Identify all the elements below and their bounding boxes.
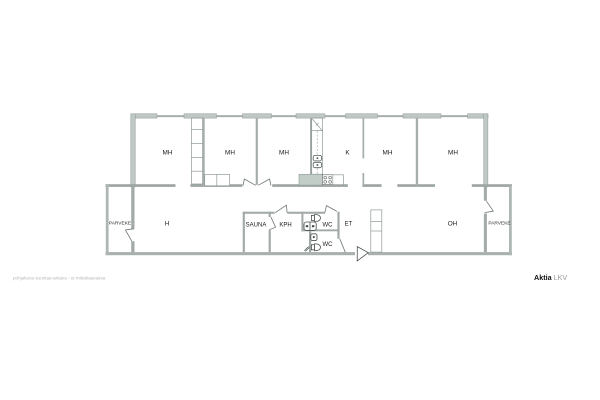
svg-text:PARVEKE: PARVEKE: [109, 220, 131, 226]
svg-text:OH: OH: [448, 221, 458, 228]
svg-text:KPH: KPH: [279, 223, 291, 229]
svg-text:K: K: [345, 150, 350, 157]
svg-text:MH: MH: [383, 150, 393, 157]
svg-text:ET: ET: [345, 221, 353, 227]
svg-text:H: H: [165, 221, 170, 228]
svg-text:Aktia LKV: Aktia LKV: [534, 273, 567, 282]
svg-text:PARVEKE: PARVEKE: [488, 220, 510, 226]
svg-text:MH: MH: [225, 150, 235, 157]
svg-text:pohjakuva suuntaa-antava - ei: pohjakuva suuntaa-antava - ei mittakaava…: [13, 276, 106, 281]
svg-text:MH: MH: [279, 150, 289, 157]
svg-text:WC: WC: [323, 242, 334, 248]
svg-text:MH: MH: [163, 150, 173, 157]
svg-text:SAUNA: SAUNA: [246, 223, 267, 229]
svg-text:MH: MH: [448, 150, 458, 157]
svg-text:WC: WC: [323, 223, 334, 229]
